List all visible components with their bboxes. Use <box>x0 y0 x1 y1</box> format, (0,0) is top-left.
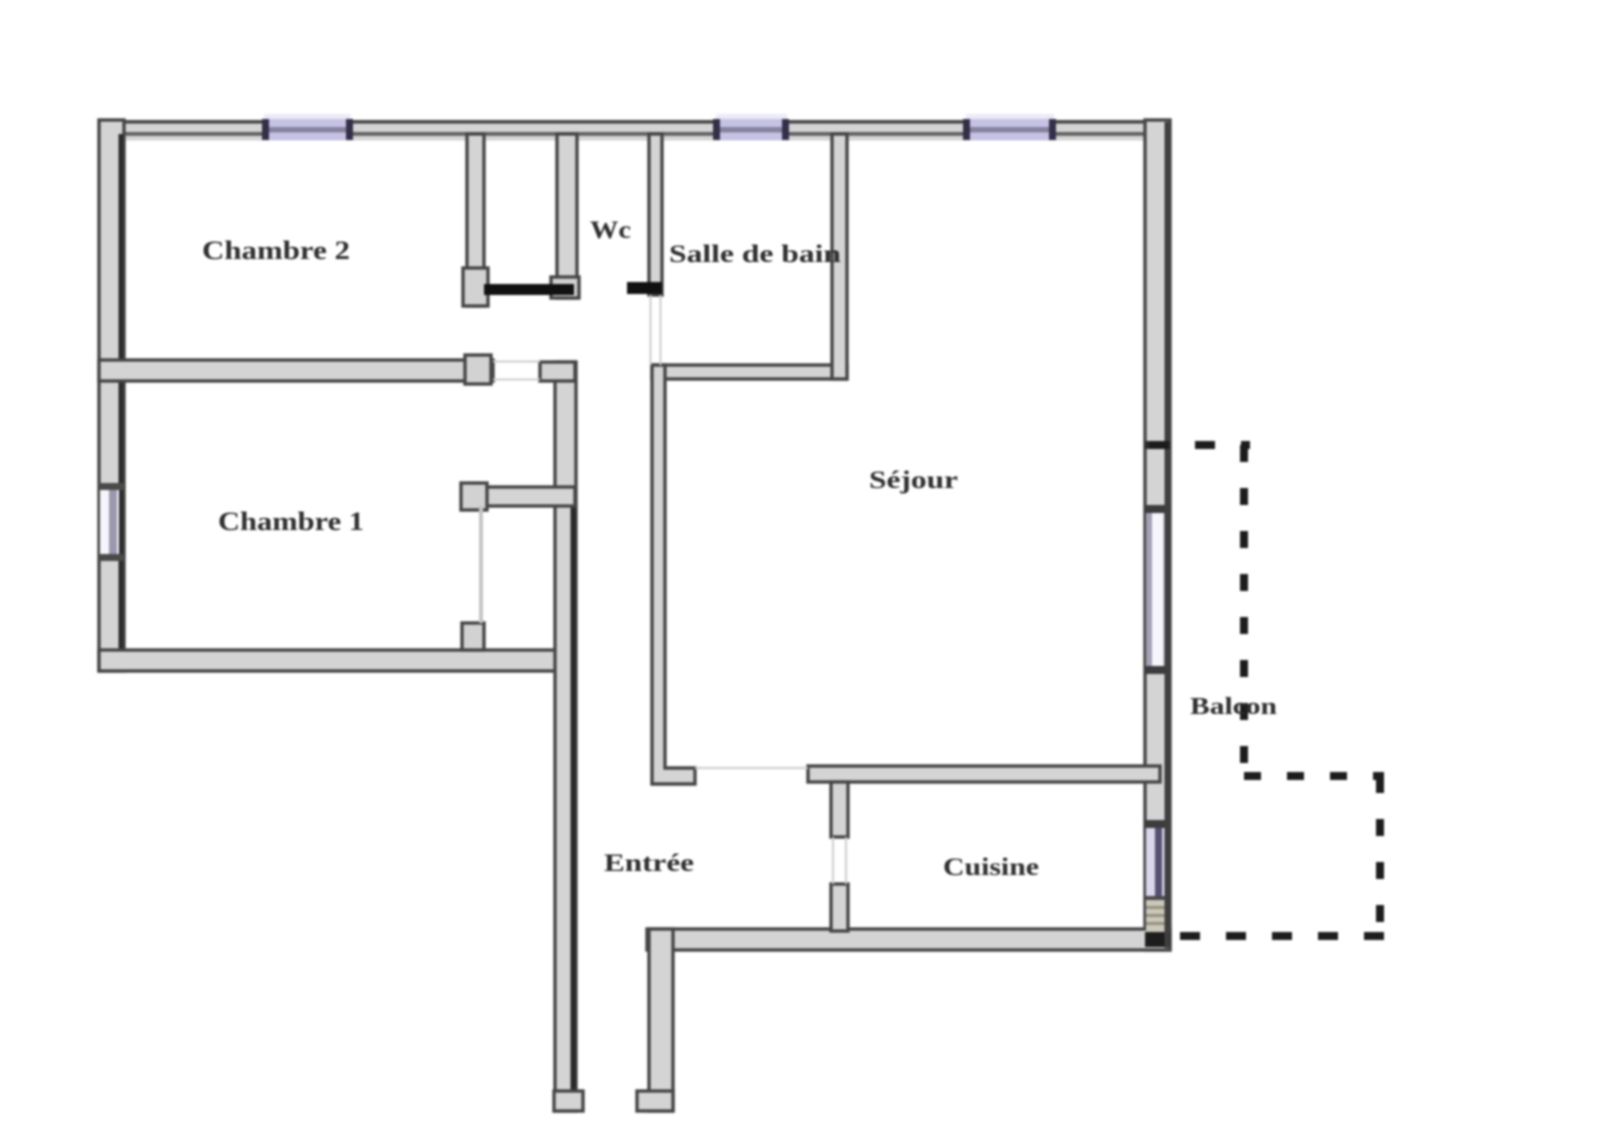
svg-text:Wc: Wc <box>590 217 631 244</box>
svg-text:Séjour: Séjour <box>869 467 958 494</box>
svg-text:Salle de bain: Salle de bain <box>669 241 841 268</box>
svg-text:Cuisine: Cuisine <box>943 854 1039 881</box>
svg-text:Balcon: Balcon <box>1190 694 1277 720</box>
svg-text:Chambre 1: Chambre 1 <box>218 507 364 536</box>
svg-text:Entrée: Entrée <box>604 850 694 877</box>
svg-text:Chambre 2: Chambre 2 <box>202 236 350 265</box>
